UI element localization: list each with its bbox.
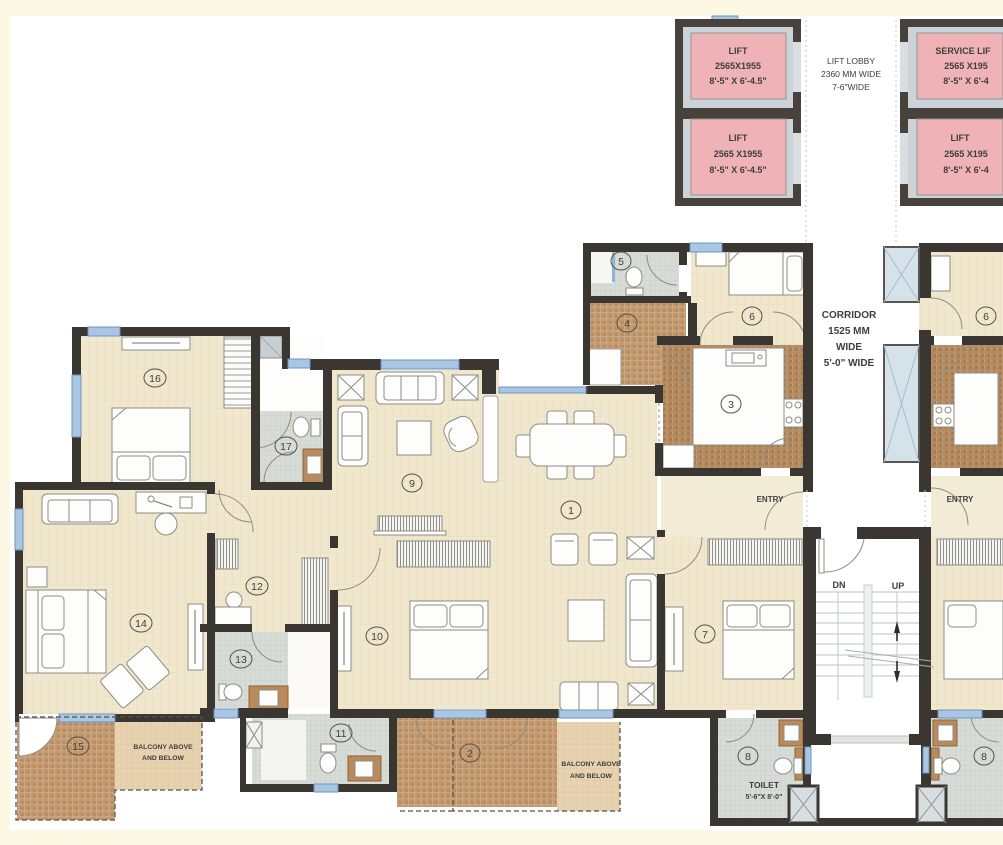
svg-text:BALCONY ABOVE: BALCONY ABOVE: [561, 761, 621, 768]
svg-text:TOILET: TOILET: [749, 780, 780, 790]
svg-text:2565X1955: 2565X1955: [715, 61, 761, 71]
svg-text:7: 7: [702, 629, 708, 641]
svg-text:14: 14: [135, 618, 147, 630]
svg-text:LIFT: LIFT: [951, 133, 970, 143]
svg-text:8'-5" X 6'-4.5": 8'-5" X 6'-4.5": [709, 165, 766, 175]
svg-text:17: 17: [280, 441, 292, 453]
svg-text:4: 4: [624, 318, 630, 330]
svg-text:8'-5" X 6'-4.5": 8'-5" X 6'-4.5": [709, 76, 766, 86]
svg-text:9: 9: [409, 478, 415, 490]
svg-text:2: 2: [467, 748, 473, 760]
svg-text:SERVICE LIF: SERVICE LIF: [935, 46, 991, 56]
svg-text:11: 11: [336, 728, 347, 740]
svg-text:5: 5: [618, 256, 624, 268]
svg-text:8: 8: [745, 751, 751, 763]
svg-text:15: 15: [72, 741, 84, 753]
svg-text:AND BELOW: AND BELOW: [142, 755, 184, 762]
svg-text:2565 X195: 2565 X195: [944, 61, 988, 71]
svg-text:ENTRY: ENTRY: [947, 495, 974, 504]
svg-text:7-6"WIDE: 7-6"WIDE: [832, 82, 870, 92]
svg-text:2360 MM WIDE: 2360 MM WIDE: [821, 69, 881, 79]
svg-text:13: 13: [235, 654, 247, 666]
svg-text:1525 MM: 1525 MM: [828, 326, 870, 337]
svg-text:12: 12: [251, 581, 263, 593]
svg-text:6: 6: [749, 311, 755, 323]
svg-text:5'-0" WIDE: 5'-0" WIDE: [824, 358, 875, 369]
svg-text:LIFT LOBBY: LIFT LOBBY: [827, 56, 875, 66]
svg-text:ENTRY: ENTRY: [757, 495, 784, 504]
svg-text:5'-6"X 8'-0": 5'-6"X 8'-0": [746, 794, 783, 801]
svg-text:10: 10: [371, 631, 383, 643]
svg-text:BALCONY ABOVE: BALCONY ABOVE: [133, 744, 193, 751]
svg-text:LIFT: LIFT: [729, 133, 748, 143]
svg-text:UP: UP: [892, 581, 905, 591]
svg-text:16: 16: [149, 373, 161, 385]
svg-text:2565 X1955: 2565 X1955: [714, 149, 763, 159]
svg-text:LIFT: LIFT: [729, 46, 748, 56]
svg-text:DN: DN: [833, 580, 846, 590]
svg-text:AND BELOW: AND BELOW: [570, 773, 612, 780]
svg-text:CORRIDOR: CORRIDOR: [822, 310, 877, 321]
svg-text:8'-5" X 6'-4: 8'-5" X 6'-4: [943, 76, 989, 86]
svg-text:1: 1: [568, 505, 574, 517]
svg-text:2565 X195: 2565 X195: [944, 149, 988, 159]
svg-text:WIDE: WIDE: [836, 342, 862, 353]
svg-text:8: 8: [981, 751, 987, 763]
svg-text:8'-5" X 6'-4: 8'-5" X 6'-4: [943, 165, 989, 175]
svg-text:3: 3: [728, 399, 734, 411]
svg-text:6: 6: [983, 311, 989, 323]
